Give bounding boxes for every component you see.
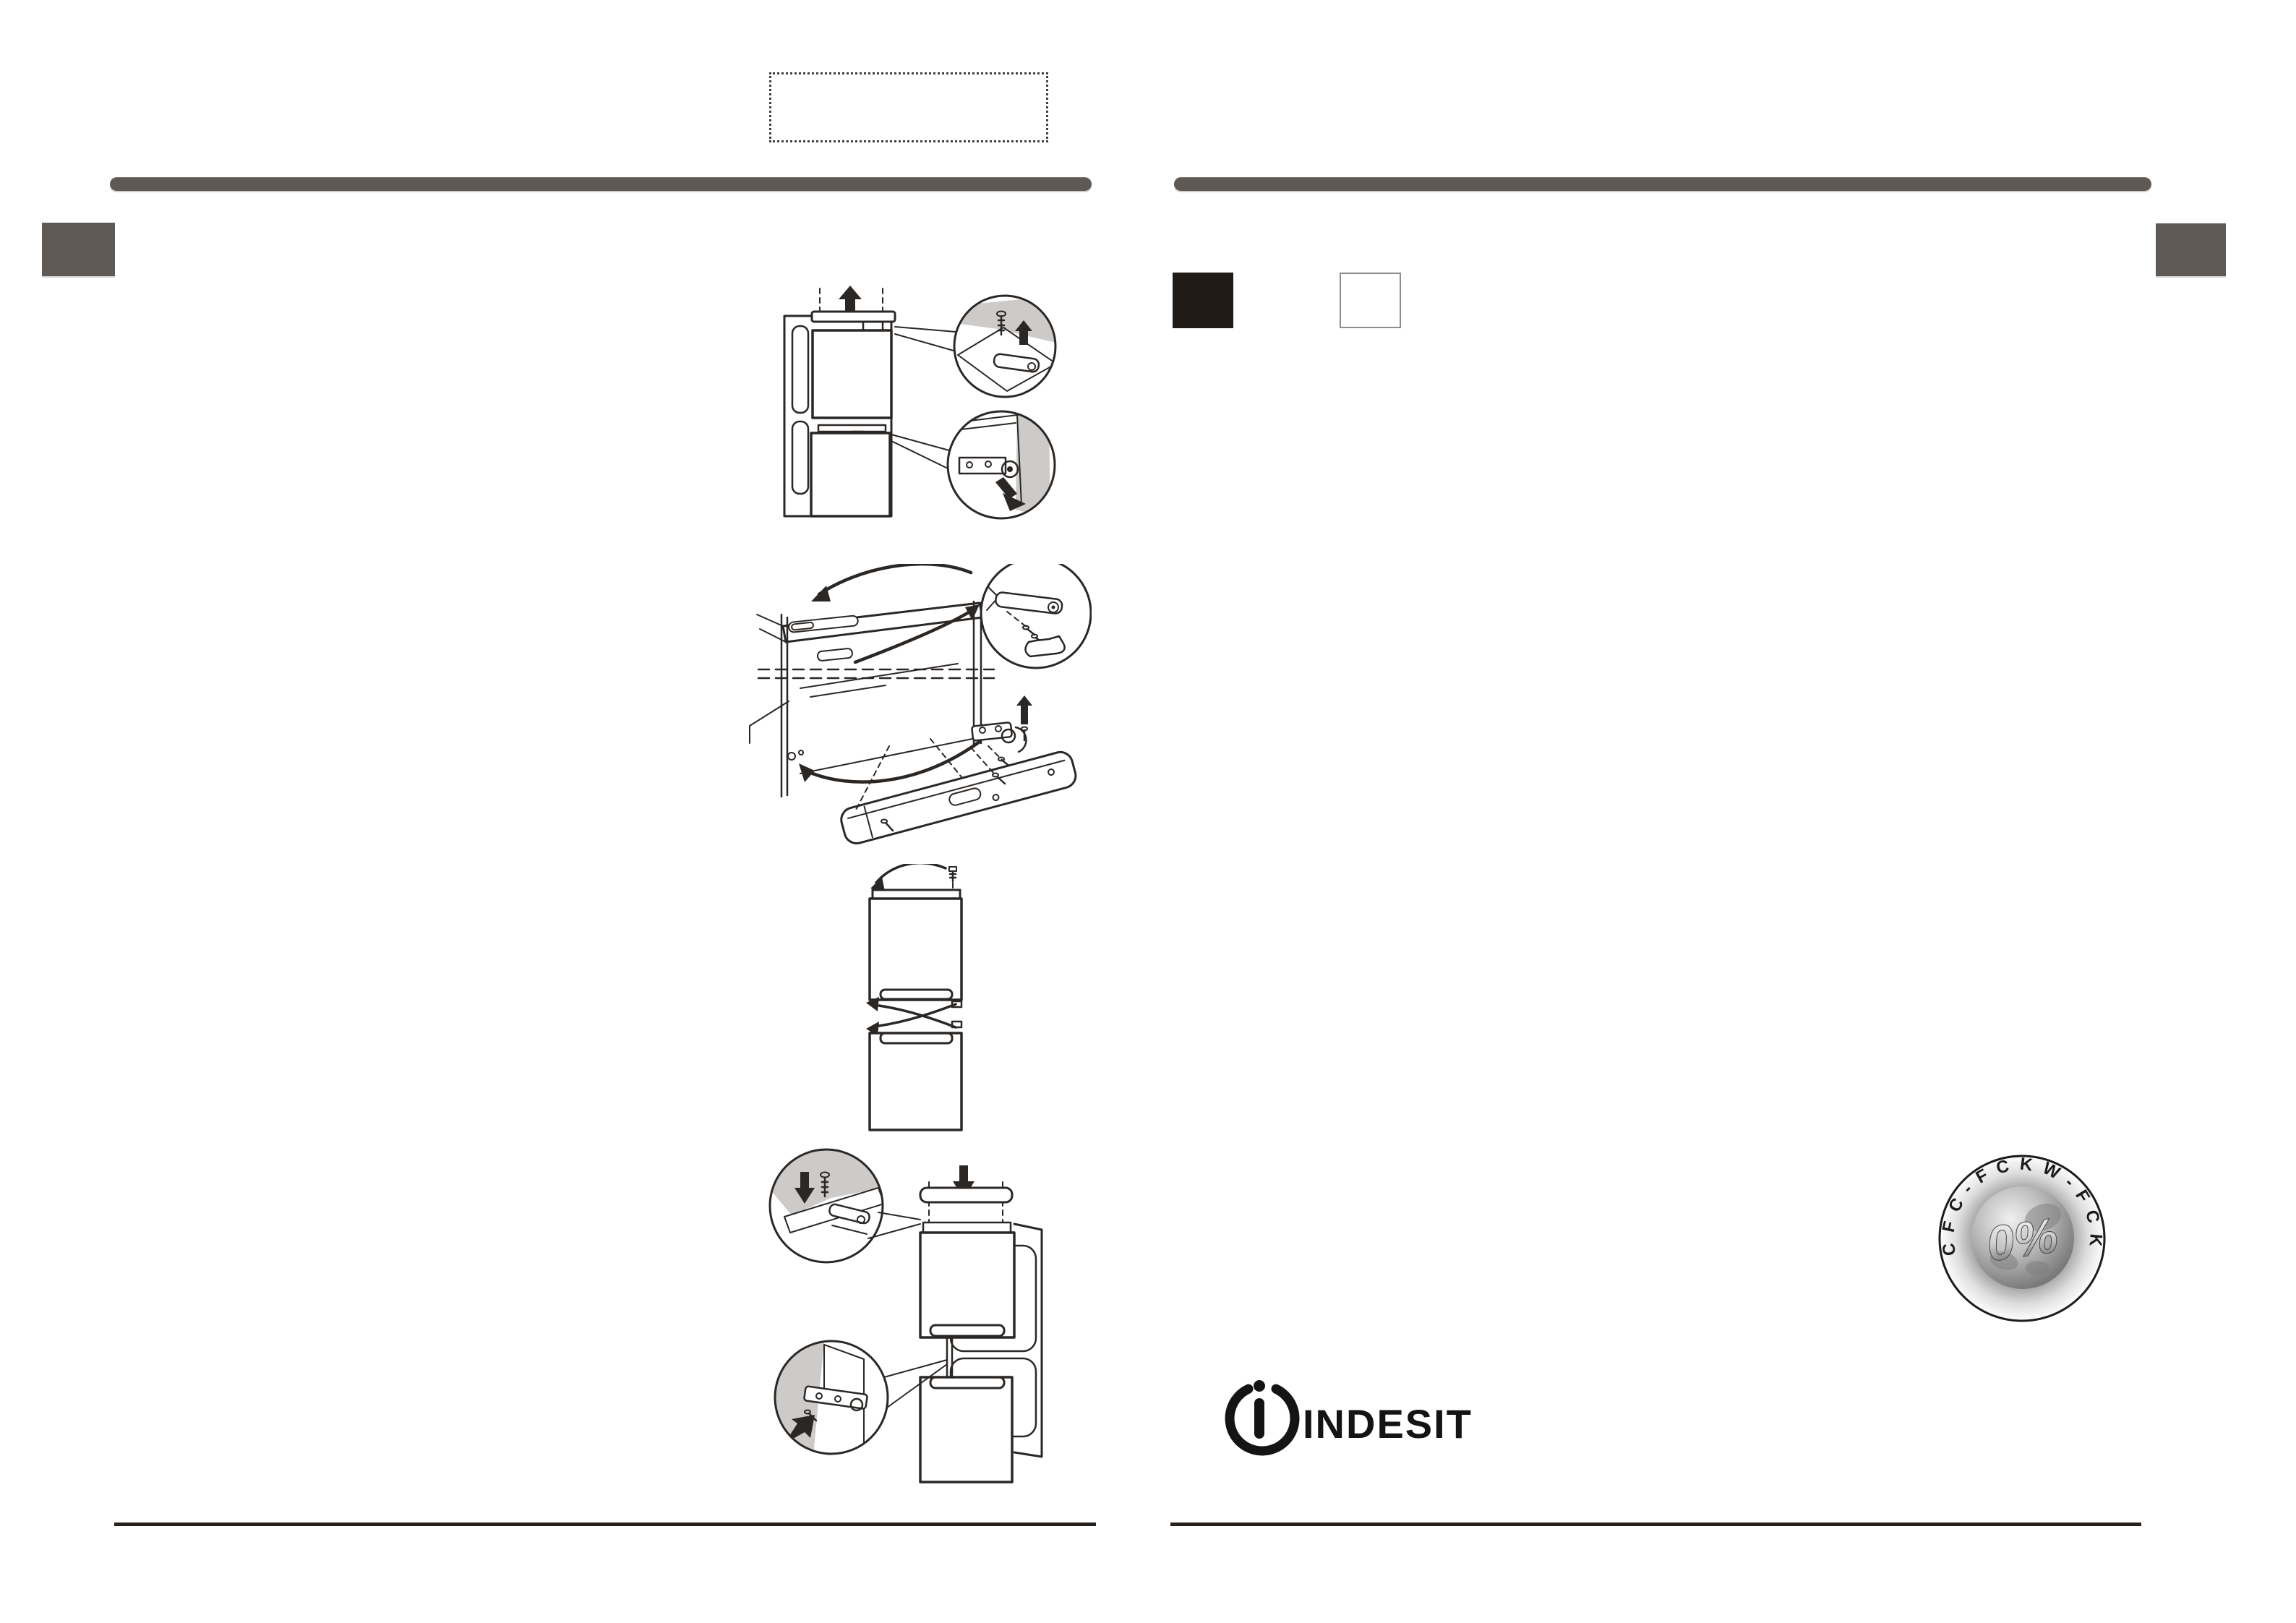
screw-hole bbox=[788, 753, 795, 760]
manual-page-spread: CFC-FCKW-FCK 0% INDESIT bbox=[0, 0, 2296, 1623]
fridge-lower-door bbox=[811, 433, 890, 516]
middle-hinge-link bbox=[947, 1337, 952, 1377]
page-edge-tab-right bbox=[2156, 223, 2226, 276]
door-reversal-diagram-step2 bbox=[741, 564, 1092, 868]
cabinet-side bbox=[1014, 1224, 1042, 1457]
section-header-bar-right bbox=[1174, 177, 2151, 191]
door-reversal-diagram-step1 bbox=[777, 286, 1066, 528]
detail-callout-top bbox=[770, 1149, 920, 1262]
fridge-front-view bbox=[784, 286, 956, 516]
footer-rule-left bbox=[114, 1523, 1096, 1526]
door-top-strip bbox=[873, 890, 960, 899]
door-reversal-diagram-step4 bbox=[763, 1146, 1048, 1489]
page-edge-tab-left bbox=[42, 223, 115, 276]
logo-wordmark: INDESIT bbox=[1303, 1401, 1473, 1447]
detail-callout-middle-hinge bbox=[942, 411, 1055, 528]
step-marker-black-square bbox=[1173, 273, 1233, 328]
cabinet-perspective bbox=[757, 601, 982, 797]
rating-label-placeholder-box bbox=[769, 72, 1048, 142]
callout-pointer-lines bbox=[891, 327, 956, 468]
step-marker-white-square bbox=[1340, 273, 1401, 328]
screw-icon bbox=[949, 867, 956, 890]
power-i-icon bbox=[1230, 1380, 1295, 1451]
up-arrow-icon bbox=[839, 286, 862, 312]
indesit-logo: INDESIT bbox=[1215, 1374, 1518, 1464]
footer-rule-right bbox=[1170, 1523, 2141, 1526]
detail-callout-hinge-parts bbox=[981, 564, 1091, 668]
upper-door-panel bbox=[870, 899, 961, 1000]
fridge-upper-door bbox=[813, 330, 891, 418]
lower-door-panel bbox=[870, 1033, 961, 1130]
top-cover bbox=[812, 312, 895, 322]
rotate-arrow bbox=[876, 864, 946, 883]
door-reversal-diagram-step3 bbox=[860, 864, 972, 1135]
floor-corner-lines bbox=[750, 701, 789, 743]
cfc-free-badge: CFC-FCKW-FCK 0% bbox=[1935, 1151, 2111, 1327]
section-header-bar-left bbox=[110, 177, 1092, 191]
plinth bbox=[839, 750, 1079, 847]
top-cover bbox=[920, 1188, 1012, 1202]
swap-arrow-bottom bbox=[809, 742, 980, 782]
fridge-lower-door bbox=[920, 1377, 1012, 1482]
zero-percent-text: 0% bbox=[1983, 1208, 2061, 1272]
swap-arrows-icon bbox=[866, 997, 956, 1036]
fridge-upper-door bbox=[920, 1233, 1014, 1337]
swap-arrow-top bbox=[819, 564, 971, 594]
detail-callout-top-hinge bbox=[954, 296, 1059, 397]
up-arrow-icon bbox=[1016, 695, 1032, 724]
